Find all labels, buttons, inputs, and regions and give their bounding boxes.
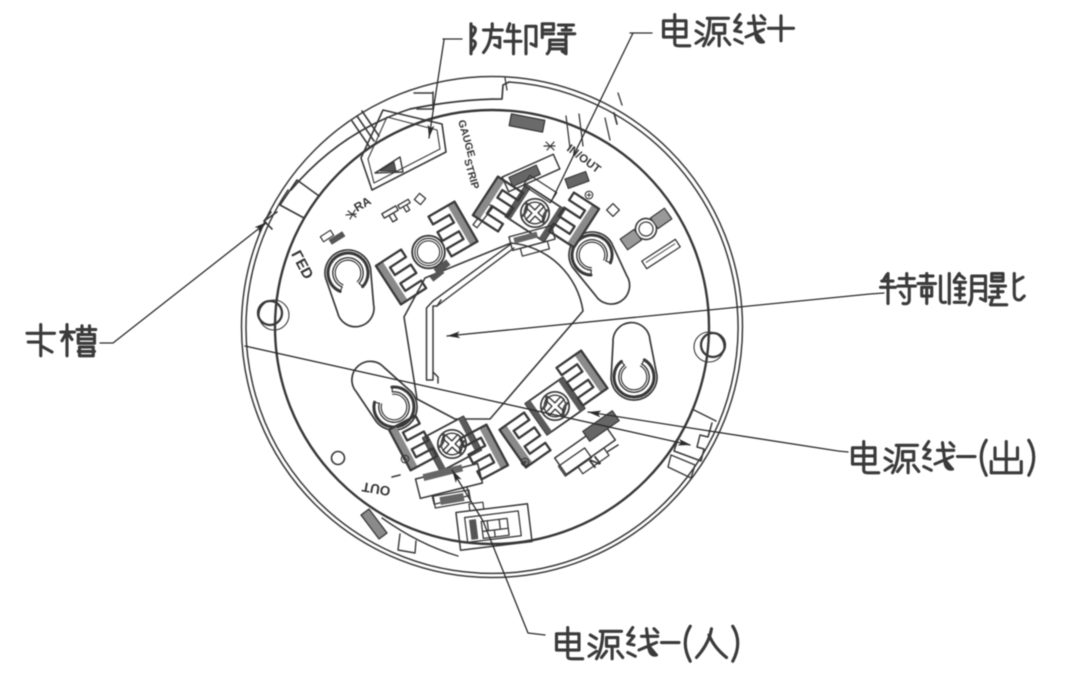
svg-text:N: N (586, 453, 604, 472)
svg-text:GAUGE: GAUGE (455, 119, 477, 159)
svg-text:IN/OUT: IN/OUT (564, 143, 602, 176)
svg-text:LED: LED (289, 247, 318, 282)
svg-text:STRIP: STRIP (461, 158, 481, 191)
svg-text:OUT: OUT (360, 479, 391, 499)
